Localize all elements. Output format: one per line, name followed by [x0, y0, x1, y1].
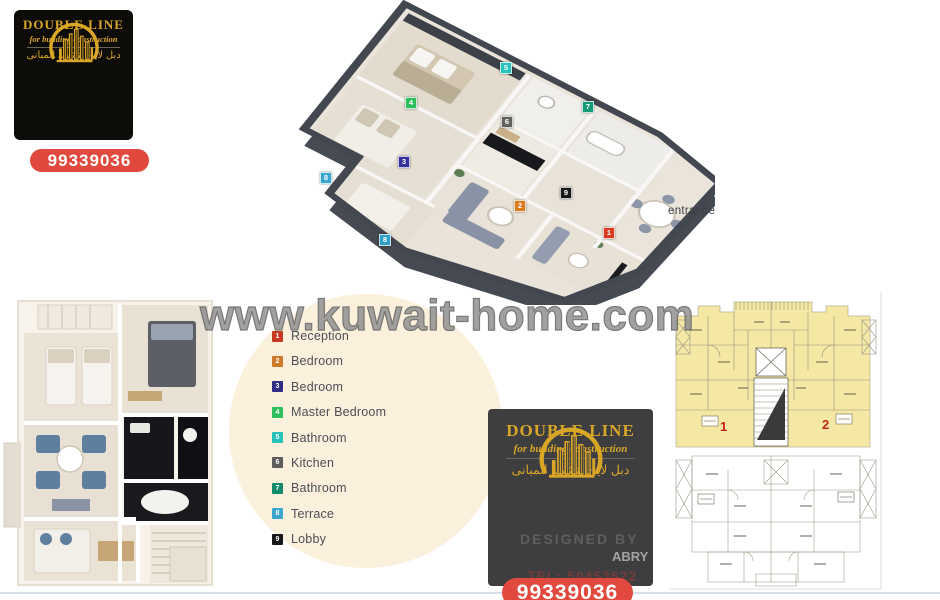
legend-item: 6Kitchen [272, 457, 386, 469]
legend-color-swatch: 9 [272, 534, 283, 545]
legend-label: Bedroom [291, 380, 343, 394]
flyer-canvas: DOUBLE LINE for building construction دب… [0, 0, 940, 600]
legend-item: 4Master Bedroom [272, 406, 386, 418]
legend-list: 1Reception2Bedroom3Bedroom4Master Bedroo… [272, 330, 386, 545]
buildings-skyline-icon [45, 16, 103, 68]
phone-number-badge: 99339036 [502, 578, 633, 600]
ghost-designer-name: ABRY [612, 549, 648, 564]
legend-item: 5Bathroom [272, 432, 386, 444]
site-watermark: www.kuwait-home.com [200, 291, 694, 341]
cad-floor-plan: 1 2 [668, 290, 884, 592]
iso-3d-floor-plan [285, 0, 715, 305]
ghost-designed-by: DESIGNED BY [520, 531, 638, 547]
legend-color-swatch: 2 [272, 356, 283, 367]
legend-color-swatch: 5 [272, 432, 283, 443]
legend-label: Bathroom [291, 431, 347, 445]
legend-color-swatch: 8 [272, 508, 283, 519]
legend-item: 7Bathroom [272, 482, 386, 494]
legend-label: Bedroom [291, 354, 343, 368]
legend-label: Master Bedroom [291, 405, 386, 419]
legend-item: 3Bedroom [272, 381, 386, 393]
legend-label: Lobby [291, 532, 326, 546]
phone-number-badge: 99339036 [30, 149, 149, 172]
brand-logo-card: DOUBLE LINE for building construction دب… [14, 10, 133, 140]
legend-item: 9Lobby [272, 533, 386, 545]
buildings-skyline-icon [534, 419, 608, 485]
legend-label: Bathroom [291, 481, 347, 495]
entrance-label: entrance [668, 205, 715, 217]
legend-label: Terrace [291, 507, 334, 521]
legend-color-swatch: 6 [272, 457, 283, 468]
legend-color-swatch: 3 [272, 381, 283, 392]
legend-color-swatch: 4 [272, 407, 283, 418]
legend-label: Kitchen [291, 456, 334, 470]
legend-color-swatch: 7 [272, 483, 283, 494]
cad-unit-1: 1 [720, 419, 727, 434]
legend-item: 2Bedroom [272, 355, 386, 367]
cad-unit-2: 2 [822, 417, 829, 432]
legend-item: 8Terrace [272, 508, 386, 520]
